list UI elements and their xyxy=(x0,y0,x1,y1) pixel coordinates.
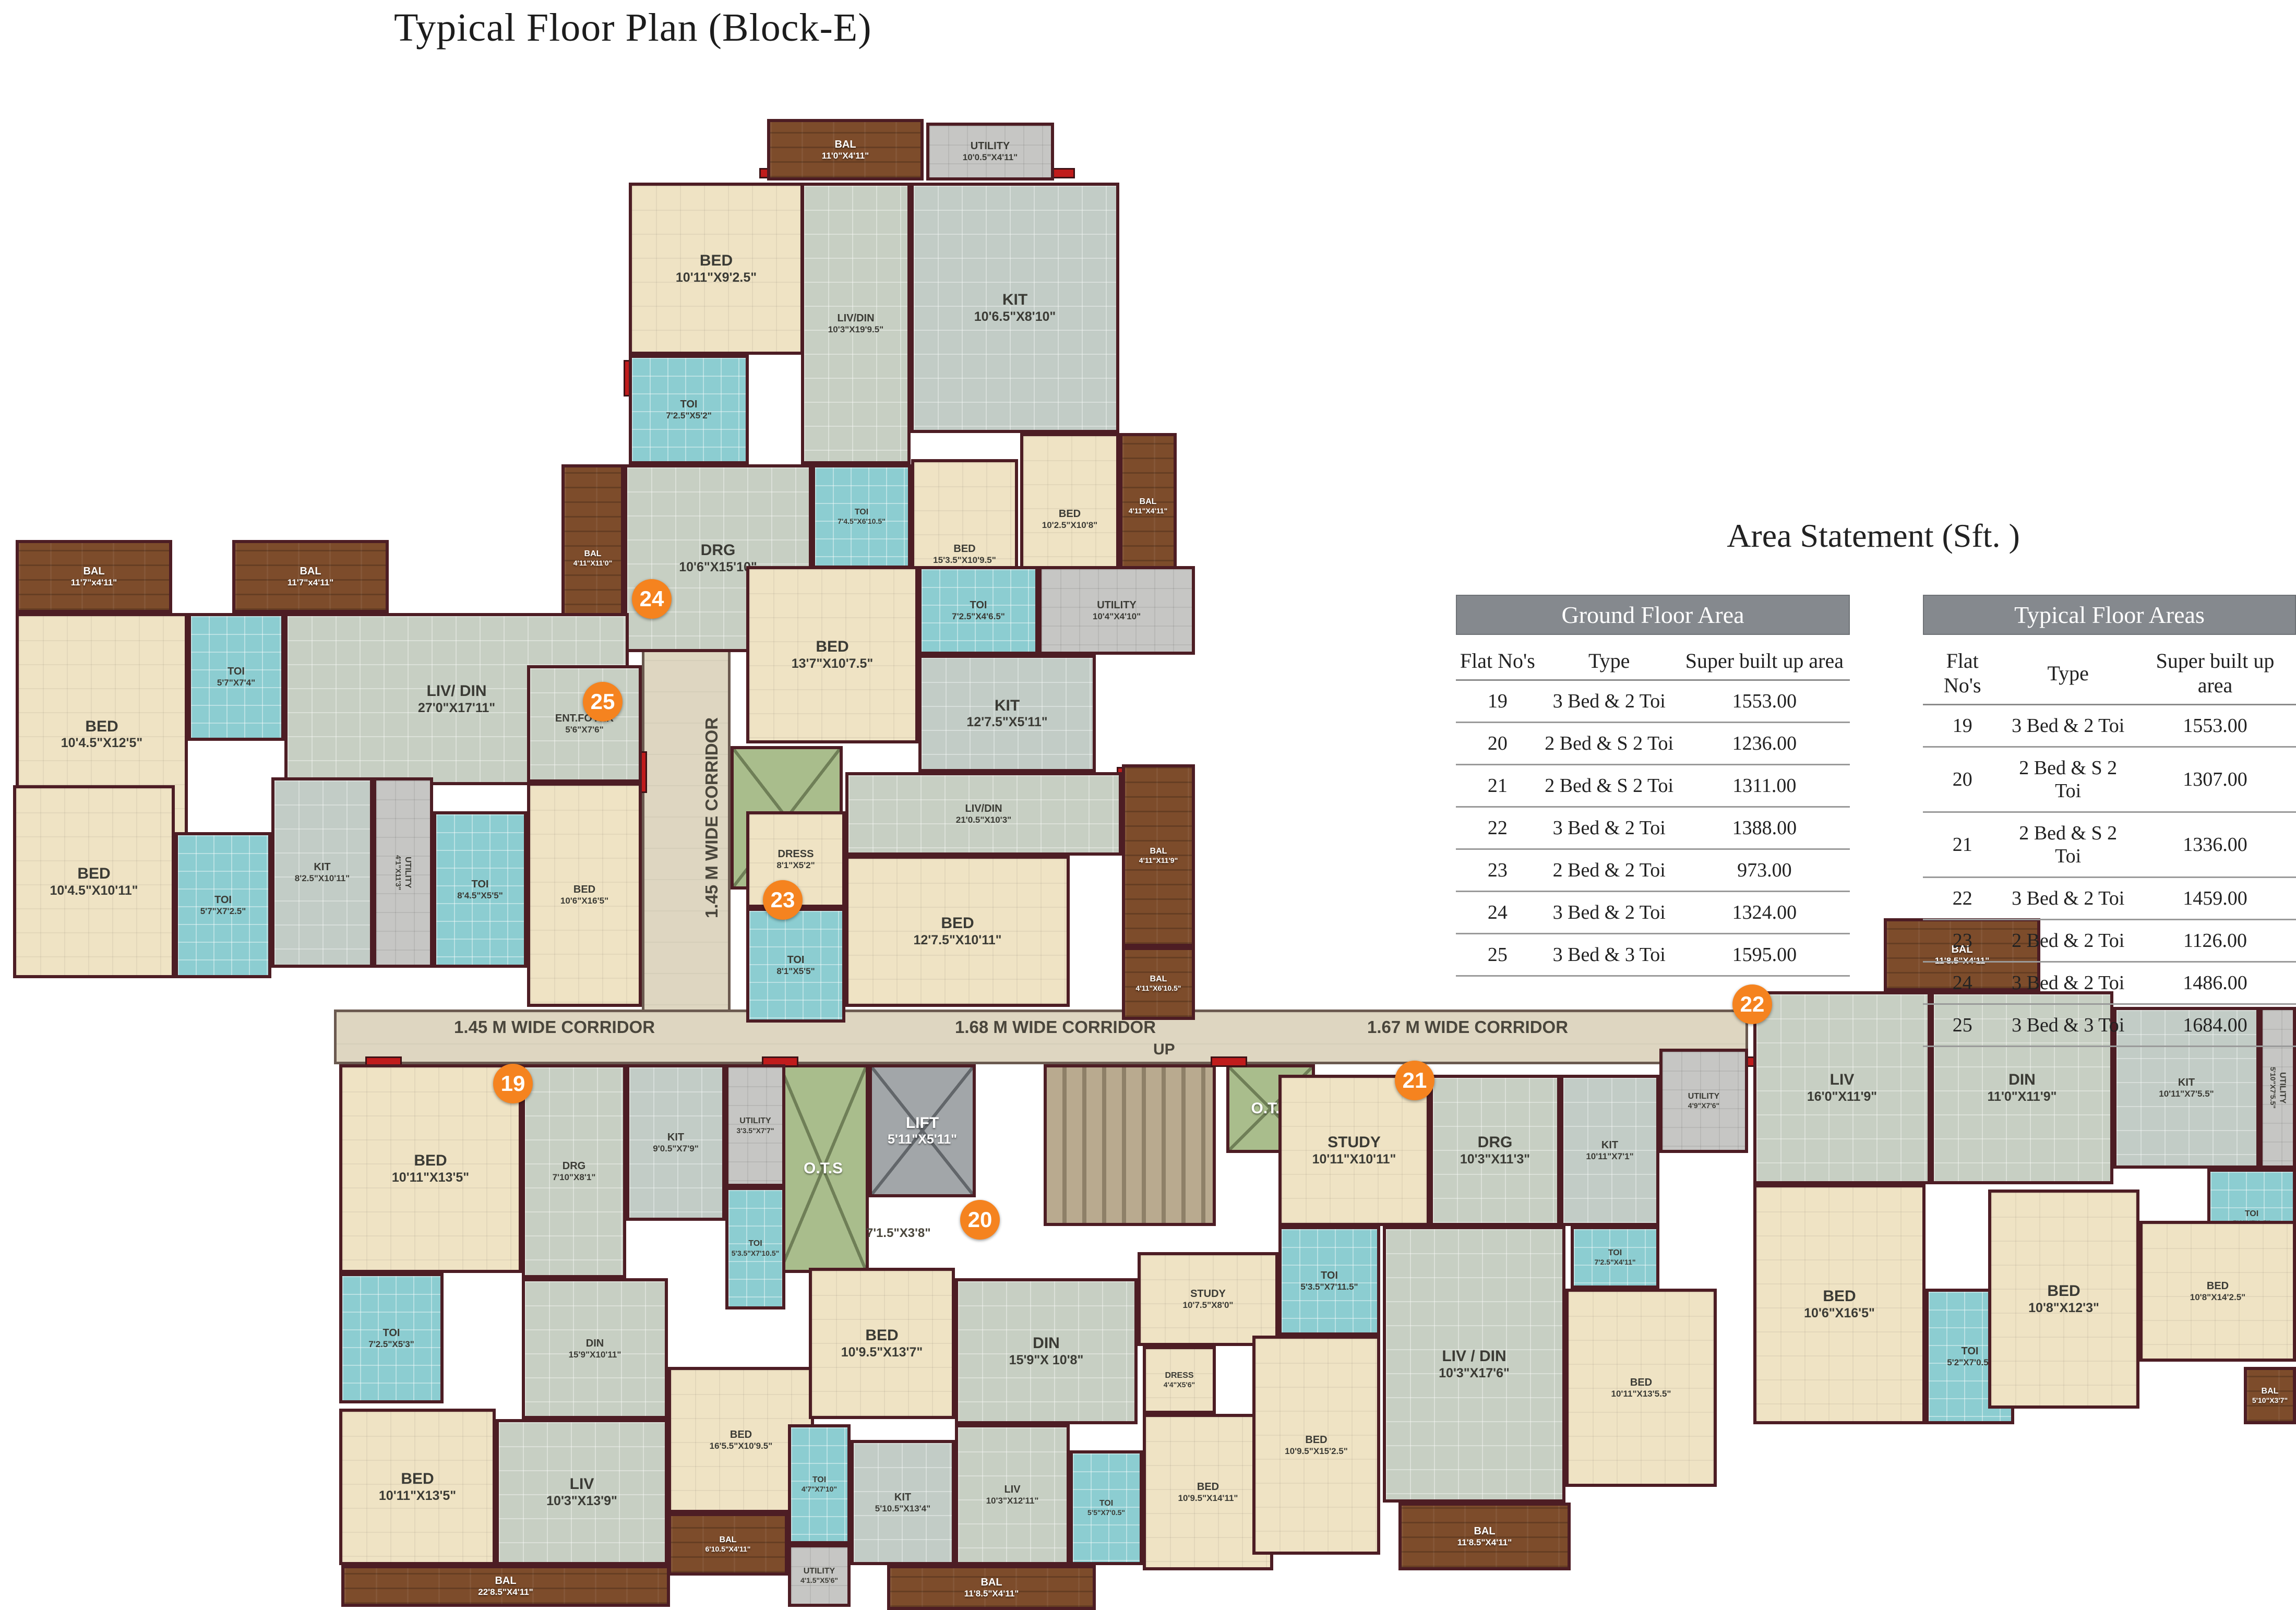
room-dim: 10'6"X16'5" xyxy=(560,896,608,906)
room-name: DRESS xyxy=(778,848,814,860)
room-19-liv: LIV10'3"X13'9" xyxy=(496,1419,668,1565)
room-name: BAL xyxy=(720,1535,737,1545)
table-cell: 1336.00 xyxy=(2134,812,2296,878)
room-23-bed: BED12'7.5"X10'11" xyxy=(845,856,1070,1007)
room-name: O.T.S xyxy=(804,1160,843,1178)
room-dim: 10'0.5"X4'11" xyxy=(963,152,1018,163)
room-dim: 10'4.5"X12'5" xyxy=(61,736,143,751)
room-dim: 10'8"X14'2.5" xyxy=(2190,1292,2245,1303)
table-row: 253 Bed & 3 Toi1684.00 xyxy=(1923,1004,2296,1047)
table-cell: 3 Bed & 3 Toi xyxy=(2002,1004,2134,1047)
room-name: TOI xyxy=(812,1475,826,1485)
room-dim: 22'8.5"X4'11" xyxy=(478,1587,533,1597)
room-23-bed: BED13'7"X10'7.5" xyxy=(746,566,918,743)
table-cell: 2 Bed & S 2 Toi xyxy=(1539,723,1679,765)
room-25-bed: BED10'6"X16'5" xyxy=(527,783,642,1007)
flat-marker-25: 25 xyxy=(583,682,623,722)
room-dim: 13'7"X10'7.5" xyxy=(792,656,874,671)
room-name: LIFT xyxy=(906,1114,939,1133)
room-dim: 10'3"X17'6" xyxy=(1439,1366,1510,1381)
room-dim: 5'7"X7'4" xyxy=(217,678,255,688)
room-name: DRESS xyxy=(1165,1371,1193,1380)
room-name: UTILITY xyxy=(1688,1092,1719,1101)
room-19-bed: BED10'11"X13'5" xyxy=(339,1064,522,1273)
table-row: 212 Bed & S 2 Toi1336.00 xyxy=(1923,812,2296,878)
room-24-liv-din: LIV/DIN10'3"X19'9.5" xyxy=(801,183,911,464)
room-21-utility: UTILITY4'9"X7'6" xyxy=(1659,1049,1748,1153)
room-20-dress: DRESS4'4"X5'6" xyxy=(1143,1346,1216,1414)
room-24-kit: KIT10'6.5"X8'10" xyxy=(911,183,1119,433)
room-dim: 5'3.5"X7'11.5" xyxy=(1300,1282,1358,1292)
room-name: BED xyxy=(941,915,974,933)
room-dim: 27'0"X17'11" xyxy=(418,701,495,716)
room-name: TOI xyxy=(228,666,245,678)
table-cell: 3 Bed & 2 Toi xyxy=(2002,705,2134,747)
room-21-bal: BAL11'8.5"X4'11" xyxy=(1398,1503,1571,1570)
room-dim: 8'1"X5'5" xyxy=(776,966,815,977)
ots-open-to-sky: O.T.S xyxy=(778,1064,869,1273)
room-dim: 7'2.5"X4'11" xyxy=(1594,1258,1635,1266)
room-dim: 10'3"X13'9" xyxy=(546,1494,617,1509)
room-name: BED xyxy=(953,543,975,555)
wall-accent xyxy=(1211,1056,1247,1067)
room-name: LIV/DIN xyxy=(837,313,874,325)
room-name: DRG xyxy=(701,542,736,560)
table-title: Ground Floor Area xyxy=(1456,595,1850,635)
room-dim: 3'3.5"X7'7" xyxy=(736,1126,774,1135)
room-dim: 5'3.5"X7'10.5" xyxy=(732,1249,780,1257)
room-name: BED xyxy=(1630,1377,1652,1389)
room-dim: 12'7.5"X10'11" xyxy=(913,933,1001,948)
table-cell: 2 Bed & S 2 Toi xyxy=(2002,812,2134,878)
room-name: LIV/ DIN xyxy=(426,682,486,701)
area-statement: Area Statement (Sft. ) Ground Floor Area… xyxy=(1451,516,2296,585)
room-name: BED xyxy=(730,1429,752,1441)
room-name: DRG xyxy=(563,1160,585,1172)
room-20-study: STUDY10'7.5"X8'0" xyxy=(1138,1252,1278,1346)
room-name: TOI xyxy=(970,599,987,611)
lift: LIFT5'11"X5'11" xyxy=(869,1064,976,1197)
room-name: TOI xyxy=(680,399,698,411)
column-header: Super built up area xyxy=(1679,635,1850,680)
room-20-utility: UTILITY4'1.5"X5'6" xyxy=(788,1544,851,1607)
room-name: KIT xyxy=(2178,1077,2195,1089)
table-cell: 2 Bed & 2 Toi xyxy=(2002,920,2134,962)
column-header: Flat No's xyxy=(1923,635,2002,705)
room-21-toi: TOI7'2.5"X4'11" xyxy=(1571,1226,1659,1289)
room-name: TOI xyxy=(1321,1270,1338,1282)
column-header: Type xyxy=(2002,635,2134,705)
room-name: BED xyxy=(85,718,118,736)
column-header: Flat No's xyxy=(1456,635,1539,680)
table-row: 232 Bed & 2 Toi1126.00 xyxy=(1923,920,2296,962)
corridor-label: 1.68 M WIDE CORRIDOR xyxy=(955,1017,1156,1037)
table-cell: 1684.00 xyxy=(2134,1004,2296,1047)
flat-marker-19: 19 xyxy=(493,1064,533,1103)
table-cell: 25 xyxy=(1923,1004,2002,1047)
table-cell: 1324.00 xyxy=(1679,892,1850,934)
table-header-row: Flat No'sTypeSuper built up area xyxy=(1923,635,2296,705)
room-name: KIT xyxy=(995,697,1020,715)
room-25-utility: UTILITY4'1"X11'3" xyxy=(373,777,433,968)
room-name: TOI xyxy=(787,954,805,966)
room-name: BAL xyxy=(2262,1387,2279,1396)
room-19-toi: TOI5'3.5"X7'10.5" xyxy=(725,1187,785,1309)
room-name: BED xyxy=(414,1152,447,1170)
table-cell: 22 xyxy=(1923,878,2002,920)
room-19-din: DIN15'9"X10'11" xyxy=(522,1278,668,1419)
room-name: DIN xyxy=(1033,1335,1060,1353)
table-cell: 2 Bed & S 2 Toi xyxy=(1539,765,1679,807)
table-cell: 1459.00 xyxy=(2134,878,2296,920)
room-name: STUDY xyxy=(1328,1134,1381,1152)
room-dim: 4'11"X6'10.5" xyxy=(1136,984,1181,992)
room-dim: 5'2"X7'0.5" xyxy=(1947,1357,1993,1368)
room-19-kit: KIT9'0.5"X7'9" xyxy=(626,1064,725,1221)
room-name: UTILITY xyxy=(971,140,1010,152)
room-dim: 7'10"X8'1" xyxy=(553,1172,596,1183)
room-20-bal: BAL11'8.5"X4'11" xyxy=(887,1565,1096,1610)
room-dim: 10'9.5"X13'7" xyxy=(841,1345,923,1360)
room-dim: 4'11"X11'9" xyxy=(1139,856,1178,864)
table-header-row: Flat No'sTypeSuper built up area xyxy=(1456,635,1850,680)
table-cell: 3 Bed & 2 Toi xyxy=(1539,807,1679,849)
room-19-toi: TOI7'2.5"X5'3" xyxy=(339,1273,444,1403)
room-dim: 10'11"X7'1" xyxy=(1586,1151,1633,1162)
room-name: UTILITY xyxy=(2277,1072,2287,1103)
room-22-bal: BAL5'10"X3'7" xyxy=(2244,1367,2296,1424)
room-name: TOI xyxy=(1099,1499,1113,1508)
room-21-liv-din: LIV / DIN10'3"X17'6" xyxy=(1383,1226,1565,1503)
room-name: KIT xyxy=(1002,291,1027,309)
room-dim: 10'11"X9'2.5" xyxy=(676,270,757,285)
room-dim: 7'4.5"X6'10.5" xyxy=(838,517,886,525)
table-cell: 3 Bed & 3 Toi xyxy=(1539,934,1679,976)
room-20-bed: BED10'9.5"X13'7" xyxy=(809,1268,955,1419)
room-name: KIT xyxy=(314,861,330,873)
table-cell: 2 Bed & 2 Toi xyxy=(1539,849,1679,892)
room-dim: 10'4"X4'10" xyxy=(1093,611,1141,622)
room-dim: 4'1"X11'3" xyxy=(394,855,402,890)
room-23-bal: BAL4'11"X6'10.5" xyxy=(1122,947,1195,1020)
room-dim: 10'3"X19'9.5" xyxy=(828,325,883,335)
room-dim: 8'4.5"X5'5" xyxy=(457,891,503,901)
table-row: 223 Bed & 2 Toi1388.00 xyxy=(1456,807,1850,849)
room-24-bed: BED10'11"X9'2.5" xyxy=(629,183,804,355)
typical-floor-areas-table: Typical Floor Areas Flat No'sTypeSuper b… xyxy=(1923,595,2296,1047)
room-dim: 10'8"X12'3" xyxy=(2028,1301,2099,1316)
corridor-label: 1.45 M WIDE CORRIDOR xyxy=(454,1017,655,1037)
room-25-bal: BAL11'7"x4'11" xyxy=(232,540,389,613)
room-25-toi: TOI5'7"X7'2.5" xyxy=(175,832,271,978)
room-dim: 5'10"X7'5.5" xyxy=(2269,1067,2277,1109)
column-header: Super built up area xyxy=(2134,635,2296,705)
room-name: TOI xyxy=(2245,1209,2258,1219)
table-cell: 1553.00 xyxy=(2134,705,2296,747)
table-cell: 19 xyxy=(1923,705,2002,747)
room-23-utility: UTILITY10'4"X4'10" xyxy=(1038,566,1195,655)
room-name: LIV / DIN xyxy=(1442,1348,1506,1366)
room-dim: 5'7"X7'2.5" xyxy=(200,906,246,917)
room-name: BED xyxy=(77,865,110,883)
room-dim: 11'8.5"X4'11" xyxy=(1457,1537,1512,1548)
room-name: BAL xyxy=(83,566,104,578)
room-dim: 4'1.5"X5'6" xyxy=(800,1576,838,1584)
room-dim: 10'3"X12'11" xyxy=(986,1496,1039,1506)
room-name: TOI xyxy=(383,1327,400,1339)
room-name: TOI xyxy=(1608,1248,1622,1258)
room-name: DIN xyxy=(2008,1071,2036,1089)
room-dim: 4'11"X11'0" xyxy=(573,559,612,567)
room-name: BAL xyxy=(1150,847,1167,856)
table-cell: 1236.00 xyxy=(1679,723,1850,765)
table-row: 202 Bed & S 2 Toi1236.00 xyxy=(1456,723,1850,765)
room-name: BAL xyxy=(834,139,856,151)
room-dim: 10'9.5"X15'2.5" xyxy=(1285,1446,1348,1457)
room-19-utility: UTILITY3'3.5"X7'7" xyxy=(725,1064,785,1187)
room-20-din: DIN15'9"X 10'8" xyxy=(955,1278,1138,1424)
room-name: BAL xyxy=(1474,1525,1495,1537)
room-dim: 11'8.5"X4'11" xyxy=(964,1589,1019,1599)
room-dim: 11'0"X4'11" xyxy=(822,151,869,161)
room-dim: 10'11"X13'5" xyxy=(379,1488,456,1504)
room-20-toi: TOI4'7"X7'10" xyxy=(788,1424,851,1544)
table-row: 202 Bed & S 2 Toi1307.00 xyxy=(1923,747,2296,812)
table-cell: 973.00 xyxy=(1679,849,1850,892)
room-dim: 8'1"X5'2" xyxy=(776,860,815,871)
room-dim: 5'10"X3'7" xyxy=(2252,1396,2288,1404)
room-name: KIT xyxy=(1601,1139,1618,1151)
room-dim: 10'11"X7'5.5" xyxy=(2159,1089,2214,1099)
flat-marker-22: 22 xyxy=(1732,984,1772,1024)
table-row: 243 Bed & 2 Toi1486.00 xyxy=(1923,962,2296,1004)
table-cell: 1486.00 xyxy=(2134,962,2296,1004)
room-21-bed: BED10'11"X13'5.5" xyxy=(1565,1289,1717,1487)
room-20-liv: LIV10'3"X12'11" xyxy=(955,1424,1070,1565)
staircase xyxy=(1044,1064,1216,1226)
room-name: UTILITY xyxy=(402,857,412,888)
flat-marker-23: 23 xyxy=(763,880,803,920)
room-name: BED xyxy=(2047,1282,2080,1301)
room-name: KIT xyxy=(894,1492,911,1504)
room-25-ent-foyer: ENT.FOYER5'6"X7'6" xyxy=(527,665,642,783)
room-dim: 7'2.5"X5'2" xyxy=(666,411,712,421)
table-cell: 19 xyxy=(1456,680,1539,723)
room-dim: 10'3"X11'3" xyxy=(1460,1152,1530,1167)
table-cell: 2 Bed & S 2 Toi xyxy=(2002,747,2134,812)
room-name: BED xyxy=(401,1470,434,1488)
room-dim: 10'6.5"X8'10" xyxy=(974,309,1056,325)
table-cell: 20 xyxy=(1923,747,2002,812)
table-cell: 3 Bed & 2 Toi xyxy=(2002,962,2134,1004)
room-25-toi: TOI8'4.5"X5'5" xyxy=(433,811,527,968)
room-dim: 10'2.5"X10'8" xyxy=(1042,520,1097,531)
corridor-label: 7'1.5"X3'8" xyxy=(866,1226,931,1241)
flat-marker-21: 21 xyxy=(1395,1061,1434,1100)
room-name: BAL xyxy=(584,549,602,559)
table-row: 232 Bed & 2 Toi973.00 xyxy=(1456,849,1850,892)
room-dim: 10'6"X15'10" xyxy=(679,560,757,575)
room-25-toi: TOI5'7"X7'4" xyxy=(188,613,284,741)
flat-marker-24: 24 xyxy=(632,579,672,619)
flat-marker-20: 20 xyxy=(960,1200,1000,1240)
table-cell: 23 xyxy=(1456,849,1539,892)
room-dim: 5'10.5"X13'4" xyxy=(875,1504,930,1514)
room-24-bal: BAL11'0"X4'11" xyxy=(767,119,924,181)
room-24-utility: UTILITY10'0.5"X4'11" xyxy=(926,123,1054,181)
corridor-label: 1.67 M WIDE CORRIDOR xyxy=(1367,1017,1568,1037)
room-name: LIV/DIN xyxy=(965,803,1002,815)
room-22-liv: LIV16'0"X11'9" xyxy=(1753,991,1931,1184)
table-cell: 1307.00 xyxy=(2134,747,2296,812)
room-19-bal: BAL22'8.5"X4'11" xyxy=(341,1565,670,1607)
room-dim: 4'11"X4'11" xyxy=(1129,507,1167,515)
table-cell: 24 xyxy=(1923,962,2002,1004)
room-dim: 4'7"X7'10" xyxy=(802,1485,837,1493)
room-name: BED xyxy=(1197,1481,1219,1493)
area-statement-heading: Area Statement (Sft. ) xyxy=(1451,516,2296,555)
room-21-bed: BED10'9.5"X15'2.5" xyxy=(1252,1336,1380,1555)
table-row: 193 Bed & 2 Toi1553.00 xyxy=(1923,705,2296,747)
room-dim: 4'9"X7'6" xyxy=(1688,1101,1719,1110)
room-dim: 10'11"X13'5.5" xyxy=(1611,1389,1671,1399)
room-name: UTILITY xyxy=(804,1567,835,1576)
room-dim: 8'2.5"X10'11" xyxy=(295,873,350,884)
corridor-label: UP xyxy=(1153,1041,1175,1059)
room-19-bed: BED10'11"X13'5" xyxy=(339,1409,496,1565)
ground-floor-area-table: Ground Floor Area Flat No'sTypeSuper bui… xyxy=(1456,595,1850,977)
room-dim: 15'3.5"X10'9.5" xyxy=(933,555,996,566)
room-25-bed: BED10'4.5"X10'11" xyxy=(13,785,175,978)
room-dim: 10'6"X16'5" xyxy=(1804,1306,1875,1321)
room-20-toi: TOI5'5"X7'0.5" xyxy=(1070,1450,1143,1565)
room-name: TOI xyxy=(855,508,868,517)
room-name: BED xyxy=(2207,1280,2229,1292)
room-dim: 5'5"X7'0.5" xyxy=(1087,1508,1125,1517)
table-cell: 21 xyxy=(1923,812,2002,878)
table-cell: 1388.00 xyxy=(1679,807,1850,849)
room-dim: 10'4.5"X10'11" xyxy=(50,883,138,898)
corridor-label: 1.45 M WIDE CORRIDOR xyxy=(702,717,722,918)
room-dim: 15'9"X 10'8" xyxy=(1009,1353,1084,1368)
room-23-toi: TOI8'1"X5'5" xyxy=(746,908,845,1023)
room-name: BAL xyxy=(1150,975,1167,984)
room-23-liv-din: LIV/DIN21'0.5"X10'3" xyxy=(845,772,1122,856)
room-name: BAL xyxy=(980,1577,1002,1589)
room-name: BED xyxy=(1823,1288,1856,1306)
room-21-kit: KIT10'11"X7'1" xyxy=(1560,1075,1659,1226)
room-name: KIT xyxy=(667,1132,684,1144)
room-dim: 16'0"X11'9" xyxy=(1807,1089,1877,1104)
room-dim: 12'7.5"X5'11" xyxy=(966,715,1047,730)
room-dim: 11'0"X11'9" xyxy=(1988,1089,2057,1104)
room-name: BAL xyxy=(1140,497,1157,507)
table-cell: 24 xyxy=(1456,892,1539,934)
room-name: TOI xyxy=(472,879,489,891)
room-23-toi: TOI7'2.5"X4'6.5" xyxy=(918,566,1038,655)
room-name: BED xyxy=(1305,1434,1327,1446)
room-25-bal: BAL11'7"x4'11" xyxy=(16,540,172,613)
table-row: 223 Bed & 2 Toi1459.00 xyxy=(1923,878,2296,920)
table-row: 193 Bed & 2 Toi1553.00 xyxy=(1456,680,1850,723)
room-24-bal: BAL4'11"X4'11" xyxy=(1119,433,1177,579)
table-cell: 1595.00 xyxy=(1679,934,1850,976)
room-name: TOI xyxy=(1962,1345,1979,1357)
room-dim: 16'5.5"X10'9.5" xyxy=(710,1441,773,1451)
column-header: Type xyxy=(1539,635,1679,680)
room-23-bal: BAL4'11"X11'9" xyxy=(1122,764,1195,947)
room-name: TOI xyxy=(748,1239,762,1248)
table-cell: 20 xyxy=(1456,723,1539,765)
room-name: UTILITY xyxy=(739,1116,771,1126)
room-name: BED xyxy=(700,252,733,270)
room-dim: 10'9.5"X14'11" xyxy=(1178,1493,1238,1504)
room-dim: 7'2.5"X5'3" xyxy=(368,1339,414,1350)
room-name: BED xyxy=(573,884,595,896)
room-dim: 10'11"X10'11" xyxy=(1312,1152,1396,1167)
table-cell: 21 xyxy=(1456,765,1539,807)
room-24-toi: TOI7'2.5"X5'2" xyxy=(629,355,749,464)
room-dim: 7'2.5"X4'6.5" xyxy=(952,611,1005,622)
room-name: DRG xyxy=(1478,1134,1513,1152)
room-22-bed: BED10'8"X12'3" xyxy=(1988,1190,2139,1409)
table-cell: 1126.00 xyxy=(2134,920,2296,962)
room-dim: 5'11"X5'11" xyxy=(888,1132,957,1147)
room-name: STUDY xyxy=(1190,1288,1226,1300)
room-25-kit: KIT8'2.5"X10'11" xyxy=(271,777,373,968)
room-name: BED xyxy=(1059,508,1081,520)
room-dim: 9'0.5"X7'9" xyxy=(653,1144,699,1154)
room-21-drg: DRG10'3"X11'3" xyxy=(1430,1075,1560,1226)
room-dim: 15'9"X10'11" xyxy=(569,1350,621,1360)
room-name: LIV xyxy=(1004,1484,1020,1496)
room-name: DIN xyxy=(586,1338,604,1350)
room-dim: 11'7"x4'11" xyxy=(71,578,117,588)
room-dim: 5'6"X7'6" xyxy=(565,725,603,735)
room-20-kit: KIT5'10.5"X13'4" xyxy=(851,1440,955,1565)
table-row: 253 Bed & 3 Toi1595.00 xyxy=(1456,934,1850,976)
room-dim: 10'11"X13'5" xyxy=(392,1170,469,1185)
table-cell: 22 xyxy=(1456,807,1539,849)
table-cell: 25 xyxy=(1456,934,1539,976)
room-name: LIV xyxy=(1830,1071,1855,1089)
room-name: TOI xyxy=(214,894,232,906)
room-name: LIV xyxy=(570,1475,594,1494)
room-19-bal: BAL6'10.5"X4'11" xyxy=(668,1513,788,1576)
table-row: 243 Bed & 2 Toi1324.00 xyxy=(1456,892,1850,934)
room-dim: 6'10.5"X4'11" xyxy=(705,1545,751,1553)
table-cell: 3 Bed & 2 Toi xyxy=(2002,878,2134,920)
table-cell: 23 xyxy=(1923,920,2002,962)
table-cell: 1311.00 xyxy=(1679,765,1850,807)
room-22-bed: BED10'6"X16'5" xyxy=(1753,1184,1926,1424)
table-cell: 3 Bed & 2 Toi xyxy=(1539,680,1679,723)
room-name: BAL xyxy=(300,566,321,578)
room-name: BAL xyxy=(495,1575,516,1587)
room-22-bed: BED10'8"X14'2.5" xyxy=(2139,1221,2296,1362)
room-name: BED xyxy=(865,1327,898,1345)
room-19-drg: DRG7'10"X8'1" xyxy=(522,1064,626,1278)
table-cell: 1553.00 xyxy=(1679,680,1850,723)
room-name: BED xyxy=(816,638,848,656)
room-23-kit: KIT12'7.5"X5'11" xyxy=(918,655,1096,772)
room-21-toi: TOI5'3.5"X7'11.5" xyxy=(1278,1226,1380,1336)
room-dim: 4'4"X5'6" xyxy=(1164,1380,1195,1389)
table-title: Typical Floor Areas xyxy=(1923,595,2296,635)
room-24-toi: TOI7'4.5"X6'10.5" xyxy=(812,464,911,569)
room-dim: 10'7.5"X8'0" xyxy=(1183,1300,1234,1311)
table-cell: 3 Bed & 2 Toi xyxy=(1539,892,1679,934)
